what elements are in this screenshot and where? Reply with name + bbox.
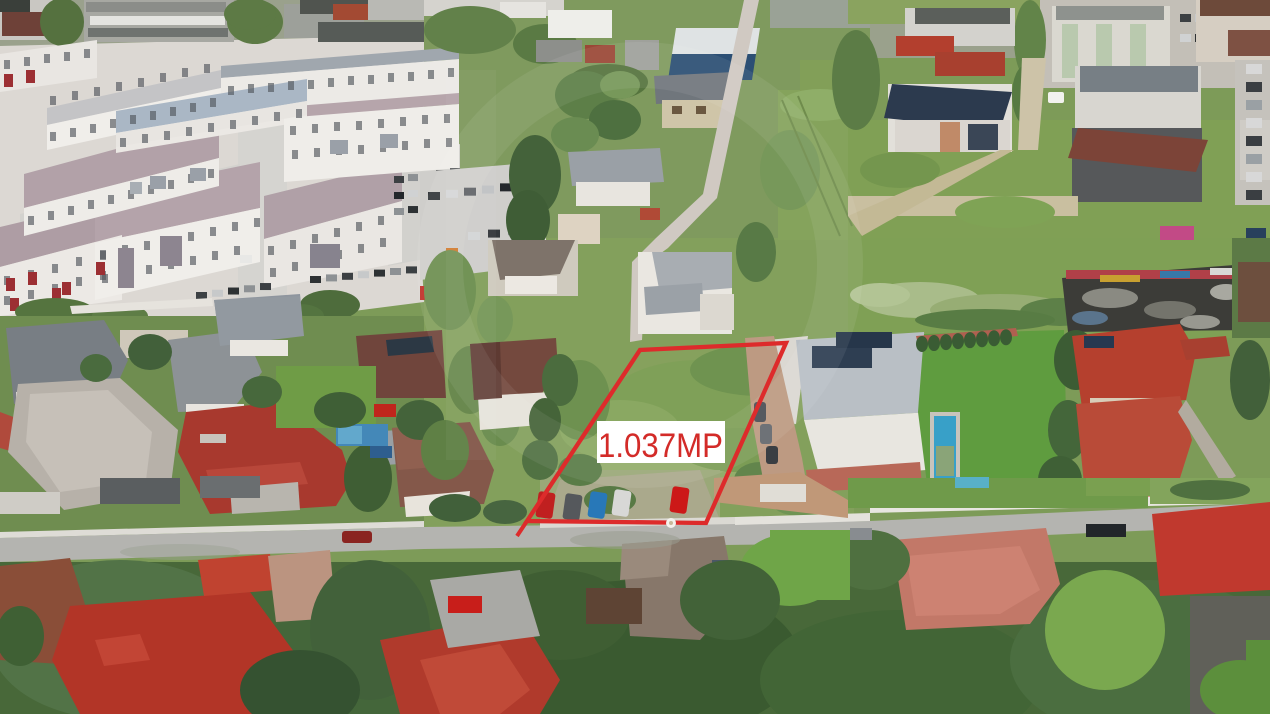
svg-text:1.037MP: 1.037MP (598, 427, 723, 465)
